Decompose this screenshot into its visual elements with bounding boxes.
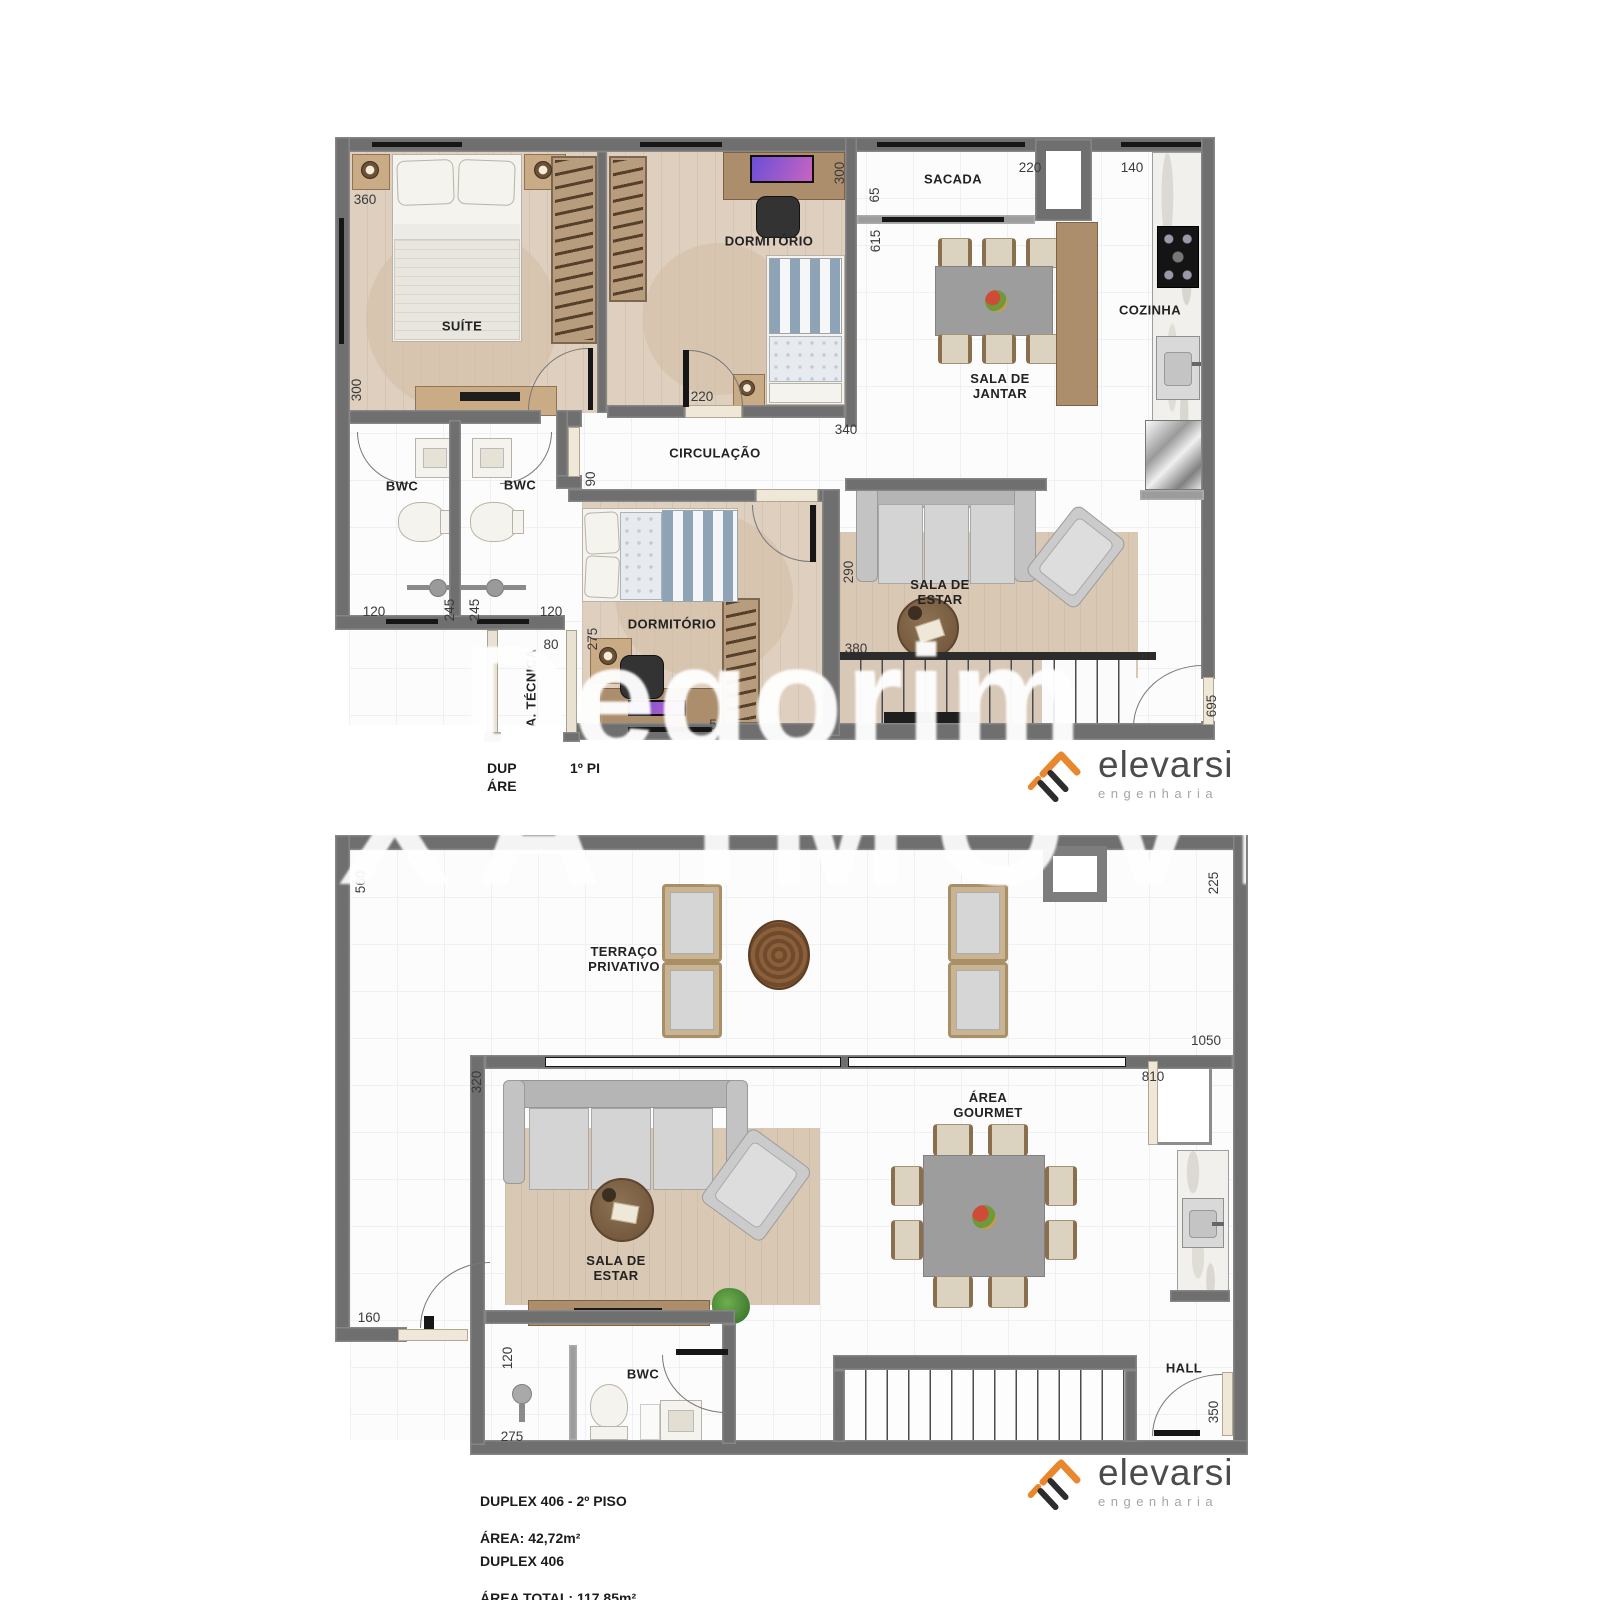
room-label-hall: HALL [1166,1362,1202,1377]
dim-label: 160 [358,1310,381,1326]
logo-name: elevarsi [1098,746,1234,783]
floorplan-sheet: DUP ÁRE 1º PI elevarsi engenharia [0,0,1600,1600]
elevarsi-chevron-icon [1028,1454,1084,1514]
dim-label: 350 [1206,1401,1222,1424]
room-label-bwc-3: BWC [627,1368,659,1383]
elevarsi-logo: elevarsi engenharia [1028,746,1234,806]
dim-label: 225 [1206,872,1222,895]
dim-label: 810 [1142,1069,1165,1085]
dim-label: 320 [469,1071,485,1094]
room-label-terraco: TERRAÇO PRIVATIVO [588,945,660,975]
dim-label: 560 [353,871,369,894]
logo-name: elevarsi [1098,1454,1234,1491]
logo-subtitle: engenharia [1098,786,1234,801]
logo-subtitle: engenharia [1098,1494,1234,1509]
room-label-sala-estar-2: SALA DE ESTAR [586,1254,645,1284]
room-label-area-gourmet: ÁREA GOURMET [953,1091,1022,1121]
dim-label: 275 [501,1429,524,1445]
elevarsi-logo: elevarsi engenharia [1028,1454,1234,1514]
dim-label: 120 [500,1347,516,1370]
dim-label: 1050 [1191,1033,1221,1049]
plan2-labels-layer: TERRAÇO PRIVATIVOÁREA GOURMETSALA DE EST… [0,0,1600,1600]
elevarsi-chevron-icon [1028,746,1084,806]
